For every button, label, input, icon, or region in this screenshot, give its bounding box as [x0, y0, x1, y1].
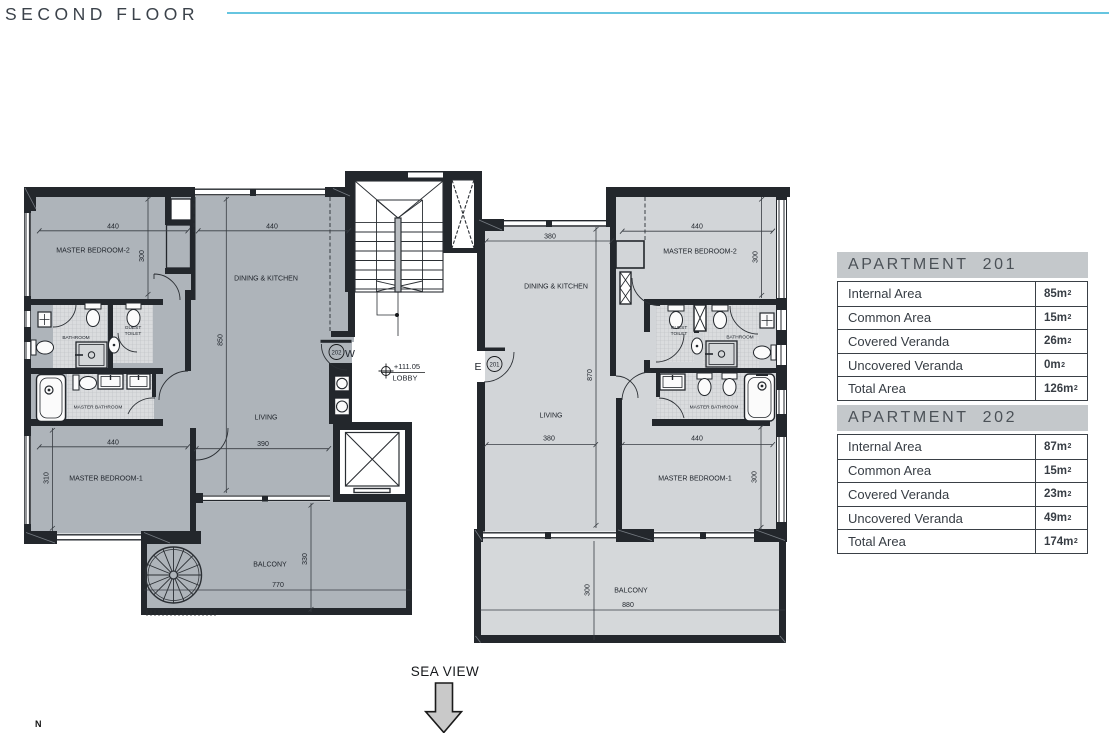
svg-text:BALCONY: BALCONY: [253, 562, 287, 569]
svg-text:MASTER BEDROOM-2: MASTER BEDROOM-2: [56, 248, 130, 255]
svg-text:GUEST: GUEST: [125, 325, 142, 331]
svg-text:202: 202: [331, 351, 342, 357]
svg-text:MASTER BEDROOM-1: MASTER BEDROOM-1: [69, 476, 143, 483]
svg-text:LOBBY: LOBBY: [392, 374, 417, 383]
svg-text:310: 310: [44, 472, 51, 484]
svg-text:DINING & KITCHEN: DINING & KITCHEN: [524, 284, 588, 291]
svg-text:770: 770: [272, 582, 284, 589]
svg-text:LIVING: LIVING: [540, 413, 563, 420]
svg-text:380: 380: [543, 436, 555, 443]
svg-text:BATHROOM: BATHROOM: [726, 335, 753, 341]
svg-text:330: 330: [302, 553, 309, 565]
svg-text:LIVING: LIVING: [255, 415, 278, 422]
svg-text:300: 300: [752, 471, 759, 483]
svg-text:300: 300: [139, 250, 146, 262]
svg-text:E: E: [474, 361, 481, 373]
svg-text:440: 440: [691, 224, 703, 231]
svg-text:TOILET: TOILET: [671, 331, 688, 337]
svg-text:440: 440: [691, 436, 703, 443]
svg-text:MASTER BATHROOM: MASTER BATHROOM: [74, 405, 123, 411]
svg-text:870: 870: [587, 369, 594, 381]
svg-text:+111.05: +111.05: [394, 362, 420, 371]
svg-text:MASTER BATHROOM: MASTER BATHROOM: [690, 405, 739, 411]
svg-text:880: 880: [622, 602, 634, 609]
svg-text:440: 440: [107, 440, 119, 447]
svg-text:GUEST: GUEST: [671, 325, 688, 331]
svg-text:W: W: [345, 348, 355, 360]
svg-text:850: 850: [218, 334, 225, 346]
svg-text:DINING & KITCHEN: DINING & KITCHEN: [234, 276, 298, 283]
svg-text:440: 440: [266, 224, 278, 231]
svg-text:MASTER BEDROOM-1: MASTER BEDROOM-1: [658, 476, 732, 483]
svg-text:BALCONY: BALCONY: [614, 588, 648, 595]
svg-text:380: 380: [544, 234, 556, 241]
svg-text:MASTER BEDROOM-2: MASTER BEDROOM-2: [663, 249, 737, 256]
svg-text:TOILET: TOILET: [125, 331, 142, 337]
svg-text:300: 300: [585, 584, 592, 596]
svg-text:300: 300: [753, 251, 760, 263]
svg-text:390: 390: [257, 441, 269, 448]
svg-text:BATHROOM: BATHROOM: [62, 335, 89, 341]
svg-text:440: 440: [107, 224, 119, 231]
svg-text:201: 201: [489, 363, 500, 369]
